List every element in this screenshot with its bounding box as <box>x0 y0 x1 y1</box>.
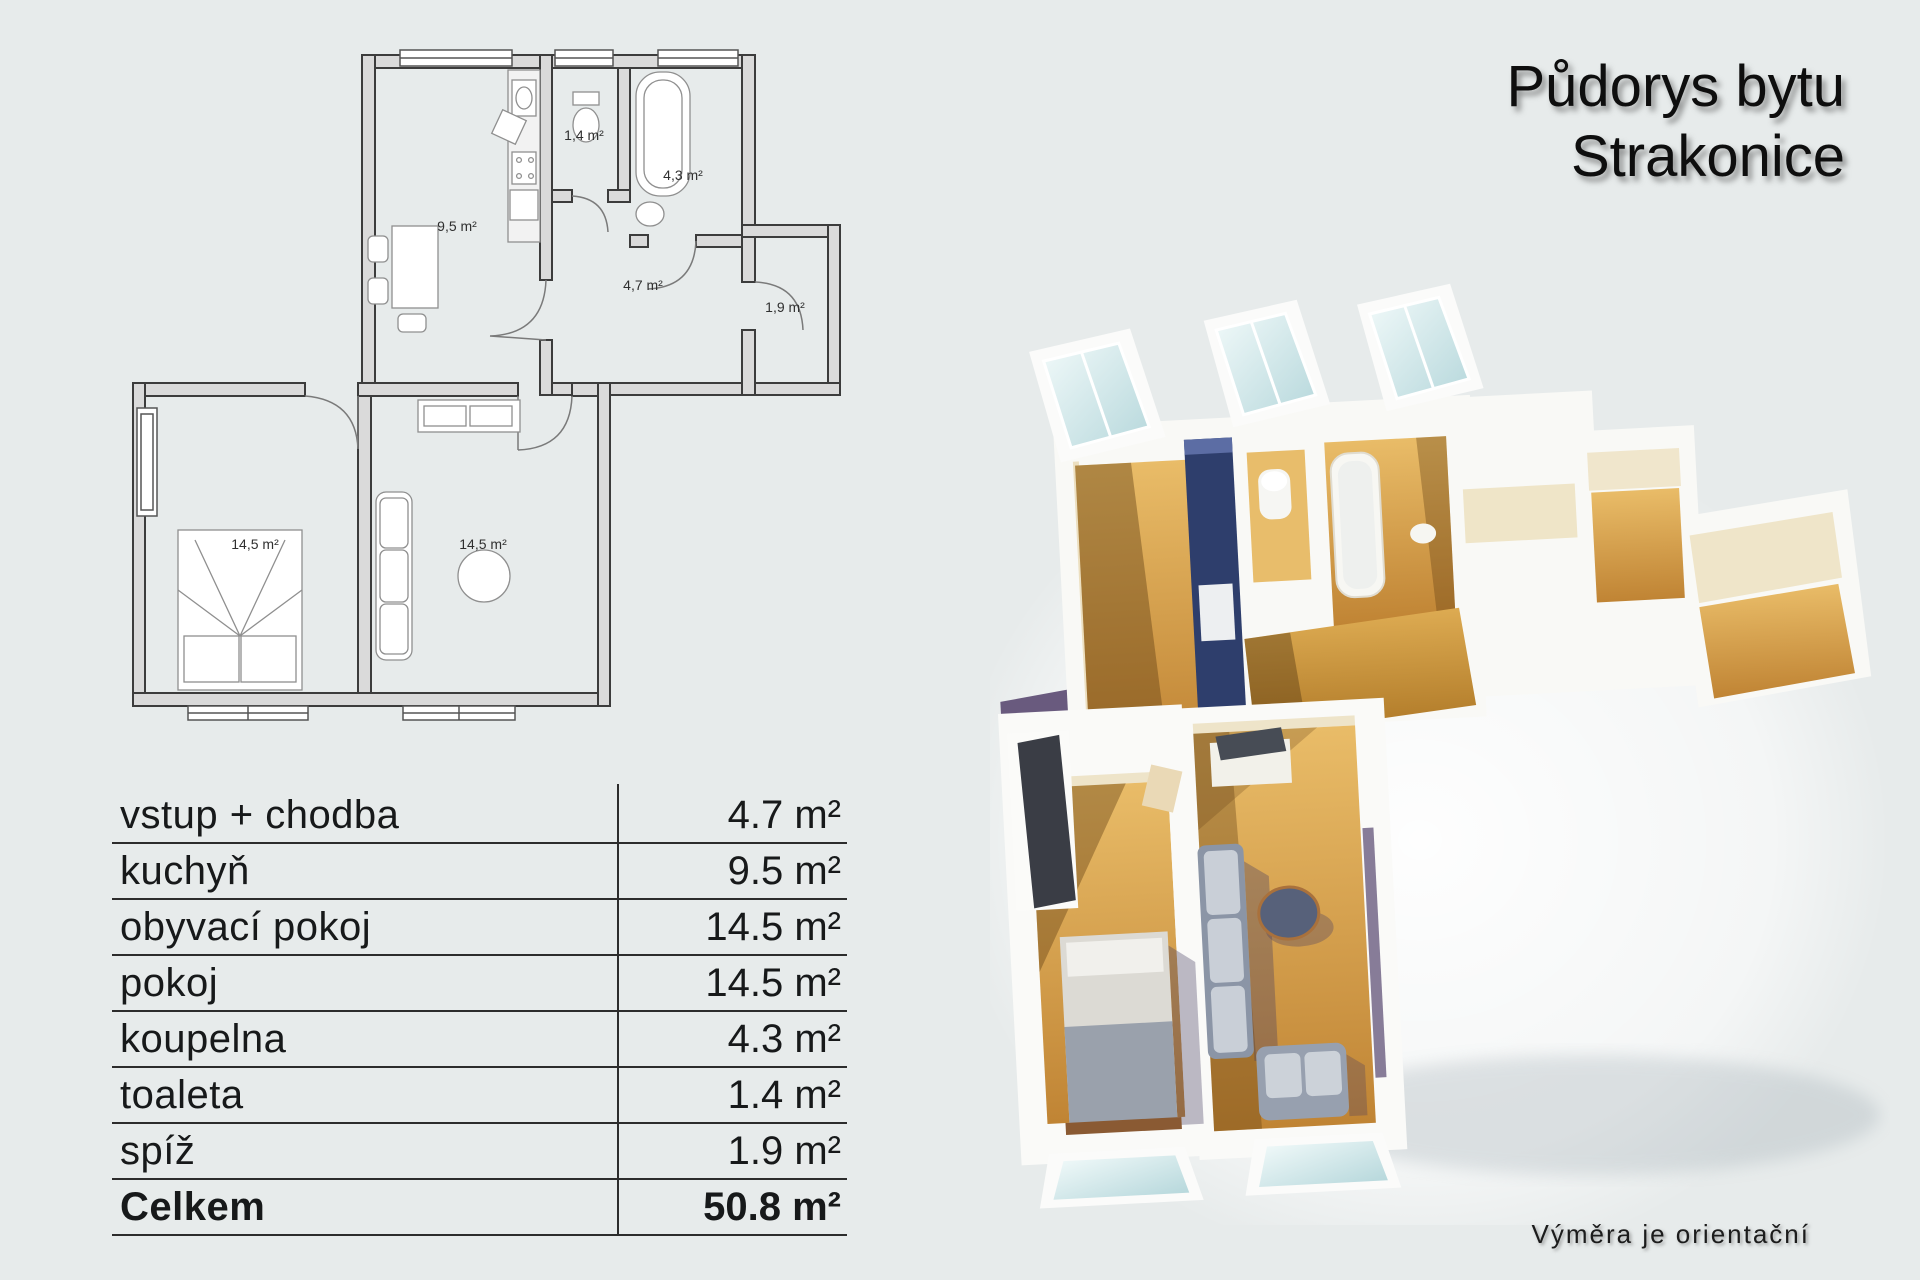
table-divider <box>617 784 619 1236</box>
room-label-obyvaci-pokoj: 14,5 m² <box>459 536 507 552</box>
area-table: vstup + chodba 4.7 m² kuchyň 9.5 m² obyv… <box>112 788 847 1236</box>
table-row: koupelna 4.3 m² <box>112 1012 847 1068</box>
room-label-chodba: 4,7 m² <box>623 277 663 293</box>
row-label: kuchyň <box>112 849 619 894</box>
room-label-koupelna: 4,3 m² <box>663 167 703 183</box>
row-label: pokoj <box>112 961 619 1006</box>
room-label-spiz: 1,9 m² <box>765 299 805 315</box>
plan-furniture <box>178 70 690 690</box>
table-row: obyvací pokoj 14.5 m² <box>112 900 847 956</box>
row-label: toaleta <box>112 1073 619 1118</box>
room-label-kuchyn: 9,5 m² <box>437 218 477 234</box>
row-value: 1.4 m² <box>619 1073 847 1118</box>
title-line-1: Půdorys bytu <box>1506 52 1845 122</box>
wardrobe <box>1007 730 1078 911</box>
row-value: 1.9 m² <box>619 1129 847 1174</box>
tv-bench <box>1209 727 1292 787</box>
row-value: 4.3 m² <box>619 1017 847 1062</box>
table-row: toaleta 1.4 m² <box>112 1068 847 1124</box>
floorplan-3d-render <box>990 280 1890 1225</box>
total-label: Celkem <box>112 1185 619 1230</box>
room-label-toaleta: 1,4 m² <box>564 127 604 143</box>
row-value: 4.7 m² <box>619 793 847 838</box>
table-row: vstup + chodba 4.7 m² <box>112 788 847 844</box>
page: 9,5 m² 1,4 m² 4,3 m² 4,7 m² 1,9 m² 14,5 … <box>0 0 1920 1280</box>
row-value: 9.5 m² <box>619 849 847 894</box>
row-label: obyvací pokoj <box>112 905 619 950</box>
sofa <box>1197 842 1278 1063</box>
row-value: 14.5 m² <box>619 905 847 950</box>
row-label: spíž <box>112 1129 619 1174</box>
total-value: 50.8 m² <box>619 1185 847 1230</box>
row-value: 14.5 m² <box>619 961 847 1006</box>
area-disclaimer: Výměra je orientační <box>1532 1219 1810 1250</box>
page-title: Půdorys bytu Strakonice <box>1506 52 1845 191</box>
table-row: pokoj 14.5 m² <box>112 956 847 1012</box>
room-label-pokoj: 14,5 m² <box>231 536 279 552</box>
table-row: kuchyň 9.5 m² <box>112 844 847 900</box>
table-row-total: Celkem 50.8 m² <box>112 1180 847 1236</box>
floorplan-2d: 9,5 m² 1,4 m² 4,3 m² 4,7 m² 1,9 m² 14,5 … <box>100 30 860 770</box>
row-label: koupelna <box>112 1017 619 1062</box>
title-line-2: Strakonice <box>1506 122 1845 192</box>
row-label: vstup + chodba <box>112 793 619 838</box>
bed <box>1056 930 1204 1135</box>
table-row: spíž 1.9 m² <box>112 1124 847 1180</box>
toilet-fixture <box>1258 468 1293 520</box>
